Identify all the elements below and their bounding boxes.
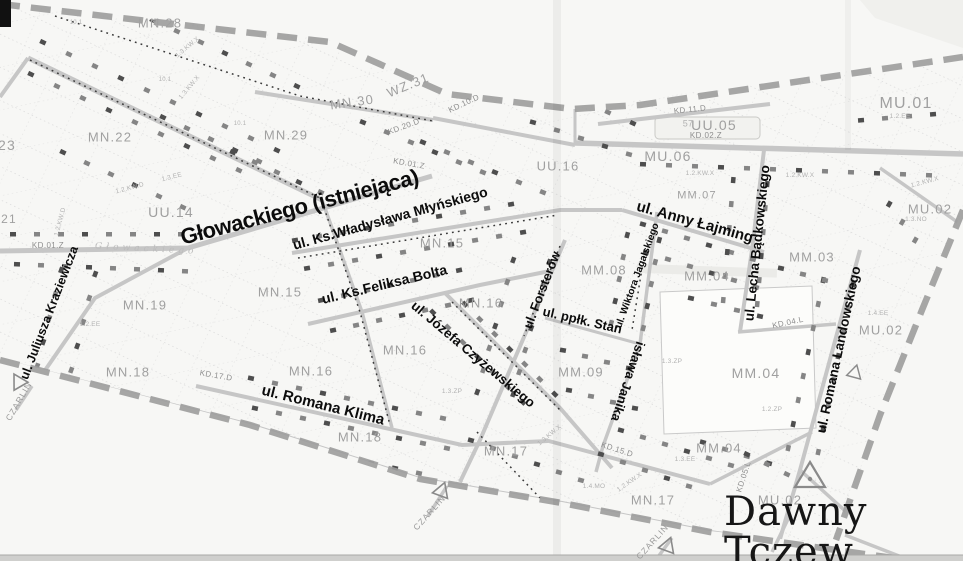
zone-label: UU.14 xyxy=(148,205,194,219)
zone-label: MM.04 xyxy=(684,270,730,283)
zone-label: UU.05 xyxy=(691,118,737,132)
pcode-label: 10.1 xyxy=(70,20,82,26)
edge-label: CZARLIN xyxy=(635,523,670,561)
zone-label: MN.16 xyxy=(383,344,427,357)
zone-label: MN.17 xyxy=(631,494,675,507)
code-label: KD.04.L xyxy=(772,316,805,330)
pcode-label: 57 xyxy=(683,120,693,129)
zone-label: MN.18 xyxy=(338,431,382,444)
scanned-map: Głowackiego (istniejąca)ul. Ks.Władysław… xyxy=(0,0,963,561)
zone-label: MN.16 xyxy=(289,365,333,378)
pcode-label: 1.3.EE xyxy=(161,172,183,184)
zone-label: MN.18 xyxy=(106,366,150,379)
pcode-label: 1.3.NO xyxy=(905,217,927,224)
code-label: KD.17.D xyxy=(199,369,233,383)
zone-label: MN.16 xyxy=(459,297,503,310)
zone-label: MN.29 xyxy=(264,129,308,142)
zone-label: MM.08 xyxy=(581,264,627,277)
pcode-label: 1.3.KW.X xyxy=(175,36,201,59)
zone-label: WZ.31 xyxy=(385,71,431,100)
kraziewicza-label: ul. Juliusza Kraziewicza xyxy=(18,244,80,381)
edge-label: CZARLIN xyxy=(4,380,33,422)
zone-label: MM.09 xyxy=(558,366,604,379)
bolta-label: ul. Ks.Feliksa Bolta xyxy=(320,262,448,306)
pcode-label: 1.2.KW.X xyxy=(786,173,815,180)
zone-label: MN.28 xyxy=(138,17,182,30)
pcode-label: 1.2.EE xyxy=(890,114,911,121)
czyzewskiego-label: ul. Józefa Czyżewskiego xyxy=(409,299,538,410)
label-layer: Głowackiego (istniejąca)ul. Ks.Władysław… xyxy=(0,0,963,561)
pcode-label: 1.2.KW.X xyxy=(910,176,939,190)
zone-label: MN.15 xyxy=(420,237,464,250)
zone-label: MU.01 xyxy=(879,96,932,112)
zone-label: MU.02 xyxy=(859,324,903,337)
zone-label: MN.22 xyxy=(88,131,132,144)
pcode-label: 1.2.KW.X xyxy=(686,171,715,178)
code-label: KD.01.Z xyxy=(32,242,64,250)
pcode-label: 1.2.EE xyxy=(80,322,101,329)
landowskiego-label: ul. Romana Landowskiego xyxy=(814,265,863,434)
code-label: KD.11.D xyxy=(673,104,706,115)
code-label: KD.15.D xyxy=(600,441,634,459)
pcode-label: 1.4.MO xyxy=(583,484,606,491)
pcode-label: 1.3.KW.X xyxy=(537,424,563,447)
zone-label: MN.15 xyxy=(258,286,302,299)
zone-label: UU.16 xyxy=(537,160,580,173)
code-label: KD.10.D xyxy=(447,93,480,114)
zone-label: MU.02 xyxy=(908,203,952,216)
pcode-label: 1.2.KW.X xyxy=(616,472,643,494)
pcode-label: 1.2.ZP xyxy=(762,407,782,414)
zone-label: 23 xyxy=(0,138,16,152)
pcode-label: 10.1 xyxy=(234,121,246,127)
zone-label: MM.03 xyxy=(789,251,835,264)
watermark-text: Dawny Tczew xyxy=(724,492,963,561)
klima-label: ul. Romana Klima xyxy=(260,383,386,428)
pcode-label: 1.3.ZP xyxy=(442,389,462,396)
zone-label: MN.17 xyxy=(484,445,528,458)
zone-label: MM.07 xyxy=(677,191,717,202)
pplk-stanislawa-janika-1-label: ul. ppłk. Stan xyxy=(542,305,624,336)
pcode-label: 1.2.KW.D xyxy=(54,207,68,237)
edge-label: CZARLIN xyxy=(412,494,447,532)
zone-label: 21 xyxy=(1,213,17,225)
pcode-label: 1.3.KW.X xyxy=(178,75,201,101)
pcode-label: 10.1 xyxy=(159,77,171,83)
zone-label: MU.06 xyxy=(644,149,691,163)
zone-label: MM.04 xyxy=(696,442,742,455)
pplk-stanislawa-janika-2-label: isława Janika xyxy=(609,340,647,423)
pcode-label: 1.2.KW.D xyxy=(115,182,145,196)
pcode-label: 1.4.EE xyxy=(868,311,889,318)
code-label: KD.20.D xyxy=(387,118,421,137)
pcode-label: 1.3.ZP xyxy=(662,359,682,366)
zone-label: MN.19 xyxy=(123,299,167,312)
zone-label: MN.30 xyxy=(329,92,375,111)
zone-label: MM.04 xyxy=(732,366,781,380)
pcode-label: 1.3.EE xyxy=(675,457,696,464)
code-label: KD.02.Z xyxy=(690,132,722,140)
